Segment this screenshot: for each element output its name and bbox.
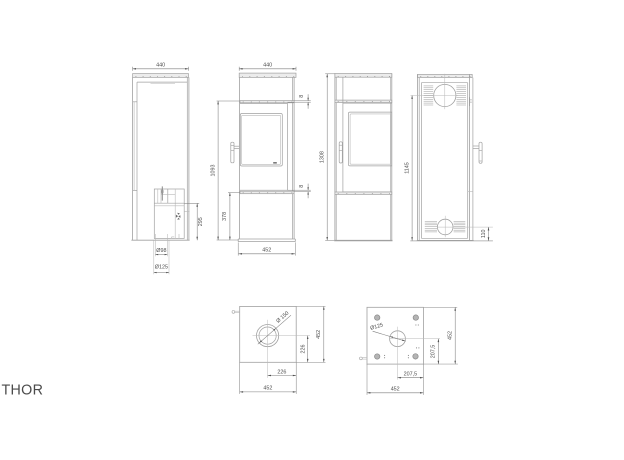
svg-text:1308: 1308 [319,151,325,163]
svg-text:295: 295 [198,217,204,226]
svg-text:378: 378 [222,212,228,221]
svg-text:1145: 1145 [404,162,410,174]
svg-text:207,5: 207,5 [431,345,437,359]
svg-text:440: 440 [156,63,165,69]
svg-text:440: 440 [263,63,272,69]
svg-text:1093: 1093 [210,165,216,177]
svg-text:207,5: 207,5 [404,372,418,378]
svg-text:Ø125: Ø125 [155,264,168,270]
svg-text:8: 8 [299,185,305,188]
svg-text:226: 226 [300,345,306,354]
svg-text:110: 110 [481,230,487,239]
svg-text:452: 452 [262,248,271,254]
svg-text:452: 452 [316,330,322,339]
svg-text:226: 226 [277,369,286,375]
svg-text:452: 452 [448,331,454,340]
svg-text:452: 452 [391,387,400,393]
svg-text:452: 452 [263,386,272,392]
svg-text:THOR: THOR [2,383,44,399]
svg-text:Ø98: Ø98 [156,248,166,254]
svg-text:8: 8 [299,95,305,98]
